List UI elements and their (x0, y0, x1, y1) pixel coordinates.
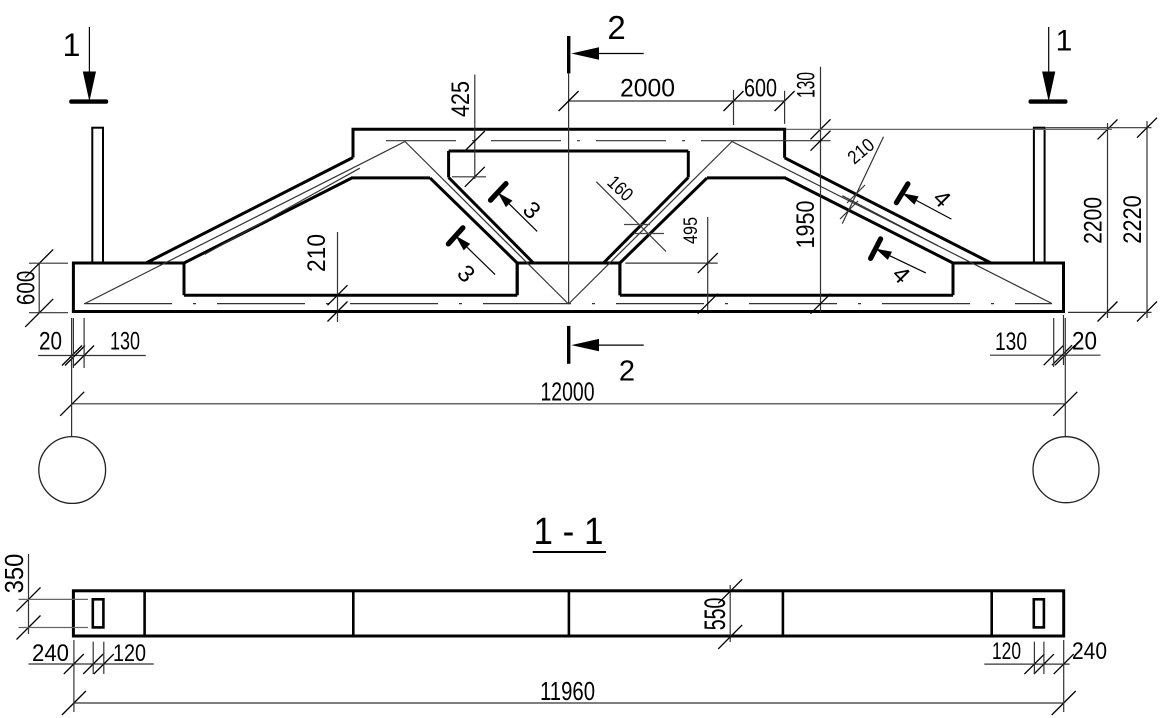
svg-text:210: 210 (303, 234, 331, 272)
svg-text:1 - 1: 1 - 1 (534, 511, 604, 553)
svg-text:12000: 12000 (541, 377, 595, 407)
svg-text:240: 240 (32, 640, 69, 667)
svg-text:1: 1 (1056, 25, 1073, 58)
svg-text:130: 130 (110, 328, 140, 356)
svg-text:120: 120 (113, 640, 146, 667)
svg-text:600: 600 (12, 271, 40, 305)
svg-text:350: 350 (0, 554, 29, 594)
svg-text:20: 20 (39, 328, 62, 356)
svg-text:130: 130 (793, 72, 821, 98)
svg-text:240: 240 (1072, 638, 1107, 665)
svg-text:2200: 2200 (1080, 197, 1108, 244)
svg-text:2: 2 (607, 9, 625, 46)
svg-text:1950: 1950 (792, 201, 820, 249)
svg-text:600: 600 (744, 75, 777, 103)
svg-text:2000: 2000 (620, 75, 675, 103)
svg-text:425: 425 (447, 81, 475, 117)
svg-text:550: 550 (699, 598, 732, 631)
svg-text:495: 495 (681, 217, 702, 244)
svg-text:120: 120 (992, 638, 1021, 665)
svg-text:2220: 2220 (1119, 195, 1147, 244)
svg-text:1: 1 (63, 27, 81, 63)
svg-text:11960: 11960 (540, 676, 595, 706)
svg-text:20: 20 (1072, 328, 1097, 356)
svg-text:130: 130 (995, 328, 1027, 356)
svg-text:2: 2 (619, 356, 635, 388)
